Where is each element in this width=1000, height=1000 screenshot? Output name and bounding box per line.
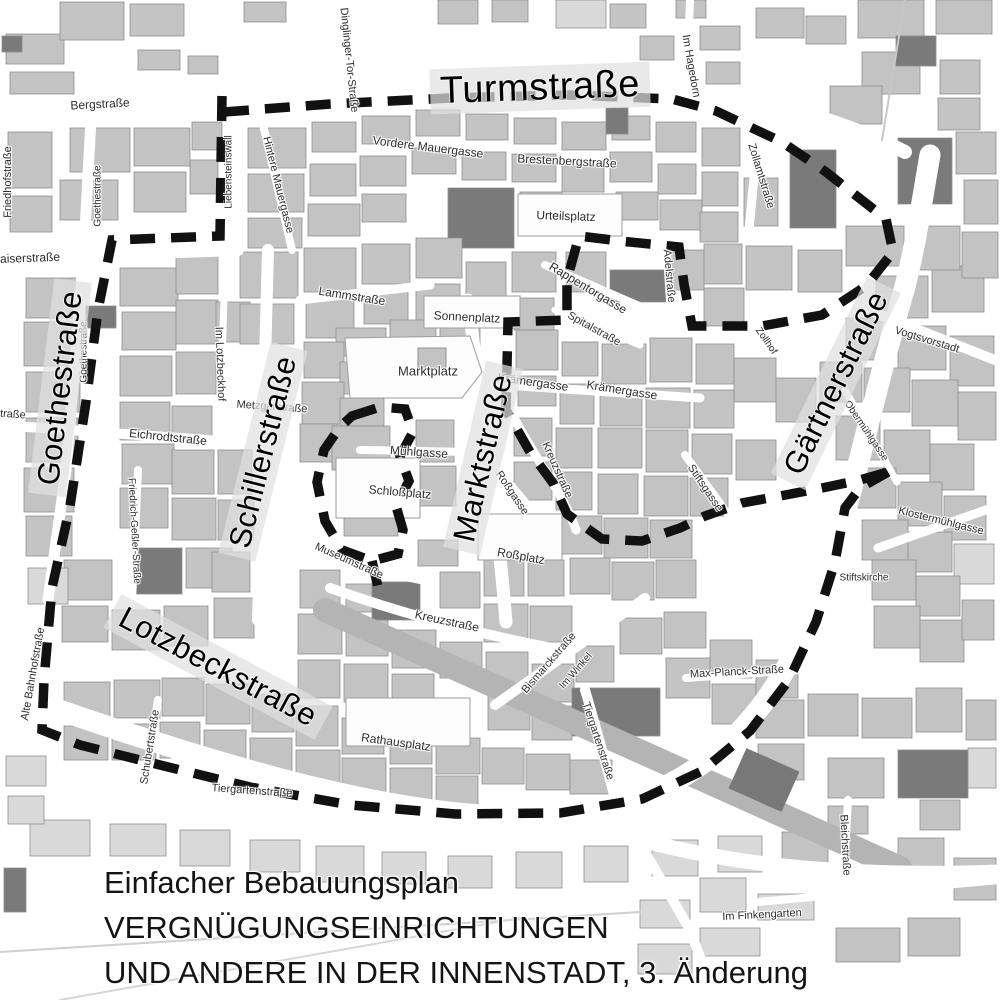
building-block — [962, 600, 994, 640]
building-block — [650, 338, 692, 382]
dark-building — [4, 868, 26, 912]
building-block — [562, 342, 598, 376]
dark-building — [606, 108, 628, 134]
building-block — [966, 700, 996, 740]
building-block — [6, 756, 46, 786]
building-block — [304, 342, 344, 378]
building-block — [936, 0, 992, 34]
building-block — [956, 132, 996, 174]
building-block — [656, 560, 696, 598]
building-block — [526, 754, 570, 790]
building-block — [798, 250, 842, 292]
dark-building — [790, 150, 836, 228]
building-block — [858, 0, 924, 38]
building-block — [556, 428, 592, 468]
building-block — [964, 180, 998, 224]
building-block — [362, 244, 410, 284]
building-block — [438, 0, 478, 24]
building-block — [562, 122, 606, 150]
building-block — [736, 440, 776, 480]
street-label: Friedhofstraße — [2, 146, 14, 218]
building-block — [916, 688, 962, 732]
dark-building — [898, 750, 968, 798]
building-block — [640, 36, 674, 60]
dark-building — [2, 36, 22, 52]
building-block — [440, 572, 480, 608]
building-block — [664, 612, 706, 648]
street-label: Urteilsplatz — [536, 208, 596, 224]
building-block — [700, 212, 738, 242]
building-block — [30, 820, 90, 856]
building-block — [920, 800, 960, 830]
building-block — [176, 300, 218, 344]
building-block — [214, 598, 254, 638]
building-block — [874, 606, 920, 648]
building-block — [620, 618, 662, 654]
building-block — [176, 352, 216, 394]
building-block — [138, 50, 180, 70]
building-block — [64, 560, 112, 600]
building-block — [62, 606, 108, 642]
street-label: Goethestraße — [93, 165, 104, 226]
street-label: Kaiserstraße — [0, 250, 60, 266]
building-block — [938, 98, 980, 130]
building-block — [962, 232, 998, 278]
building-block — [134, 172, 186, 212]
building-block — [8, 796, 44, 824]
plan-caption: Einfacher Bebauungsplan VERGNÜGUNGSEINRI… — [104, 860, 808, 995]
building-block — [598, 428, 642, 468]
dark-building — [896, 36, 936, 66]
building-block — [188, 56, 218, 74]
building-block — [344, 664, 388, 702]
building-block — [362, 194, 406, 222]
building-block — [466, 262, 506, 296]
building-block — [808, 694, 858, 736]
building-block — [60, 2, 124, 40]
building-block — [308, 204, 360, 236]
building-block — [120, 268, 178, 306]
building-block — [828, 758, 884, 798]
building-block — [706, 62, 740, 84]
street-label: Marktplatz — [398, 364, 458, 379]
building-block — [610, 4, 646, 28]
building-block — [482, 748, 524, 784]
building-block — [806, 16, 846, 44]
building-block — [658, 164, 696, 194]
building-block — [492, 0, 528, 22]
building-block — [134, 128, 190, 166]
building-block — [302, 382, 344, 424]
building-block — [660, 200, 702, 230]
building-block — [700, 26, 740, 50]
building-block — [912, 380, 958, 426]
building-block — [10, 72, 74, 94]
street-label: Stiftskirche — [840, 573, 889, 584]
building-block — [130, 4, 184, 36]
building-block — [656, 122, 696, 152]
building-block — [836, 928, 900, 962]
building-block — [908, 918, 960, 956]
building-block — [920, 620, 964, 662]
building-block — [702, 172, 738, 206]
building-block — [162, 678, 204, 716]
building-block — [120, 356, 172, 396]
building-block — [110, 824, 166, 856]
building-block — [8, 132, 52, 188]
building-block — [172, 450, 214, 494]
building-block — [746, 246, 792, 290]
street-label: Im Lotzbeckhof — [213, 327, 228, 402]
building-block — [190, 160, 218, 194]
building-block — [602, 344, 646, 384]
building-block — [562, 166, 604, 192]
building-block — [176, 256, 218, 294]
building-block — [916, 576, 960, 616]
building-block — [10, 196, 52, 232]
caption-line-1: Einfacher Bebauungsplan — [104, 860, 808, 905]
building-block — [756, 8, 804, 38]
building-block — [244, 2, 286, 22]
building-block — [122, 312, 176, 350]
building-block — [702, 128, 740, 166]
building-block — [646, 430, 688, 472]
building-block — [312, 122, 356, 152]
dark-building — [86, 306, 116, 328]
building-block — [598, 474, 638, 514]
plan-map-canvas: BergstraßeFriedhofstraßeGoethestraßeGoet… — [0, 0, 1000, 1000]
building-block — [516, 330, 558, 370]
building-block — [862, 698, 912, 738]
building-block — [416, 238, 462, 278]
caption-line-2: VERGNÜGUNGSEINRICHTUNGEN — [104, 905, 808, 950]
building-block — [644, 476, 688, 516]
building-block — [704, 288, 744, 326]
building-block — [514, 118, 556, 144]
building-block — [958, 392, 996, 440]
building-block — [846, 226, 904, 266]
building-block — [466, 114, 508, 140]
building-block — [172, 498, 216, 540]
building-block — [734, 358, 776, 402]
building-block — [360, 156, 406, 186]
building-block — [310, 164, 356, 196]
street-label: Liebensteinswall — [224, 135, 235, 208]
building-block — [940, 60, 980, 94]
major-street-label: Turmstraße — [429, 62, 650, 115]
building-block — [696, 344, 734, 384]
building-block — [968, 748, 996, 788]
caption-line-3: UND ANDERE IN DER INNENSTADT, 3. Änderun… — [104, 950, 808, 995]
building-block — [556, 0, 606, 28]
building-block — [570, 558, 610, 594]
building-block — [704, 244, 742, 284]
